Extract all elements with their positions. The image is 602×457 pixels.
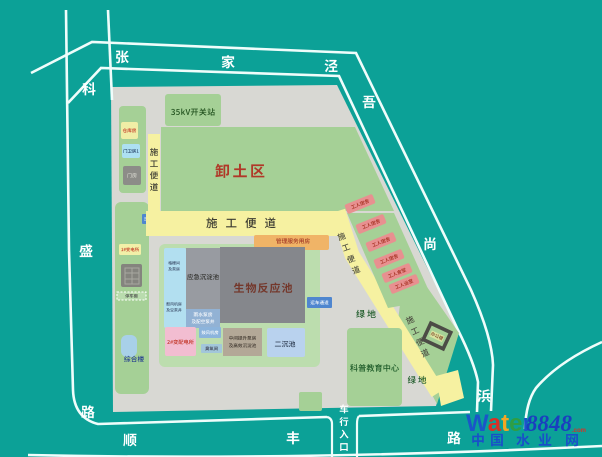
svg-text:8848: 8848 [526, 411, 573, 436]
svg-text:.com: .com [572, 428, 586, 434]
svg-text:Water: Water [466, 410, 532, 437]
